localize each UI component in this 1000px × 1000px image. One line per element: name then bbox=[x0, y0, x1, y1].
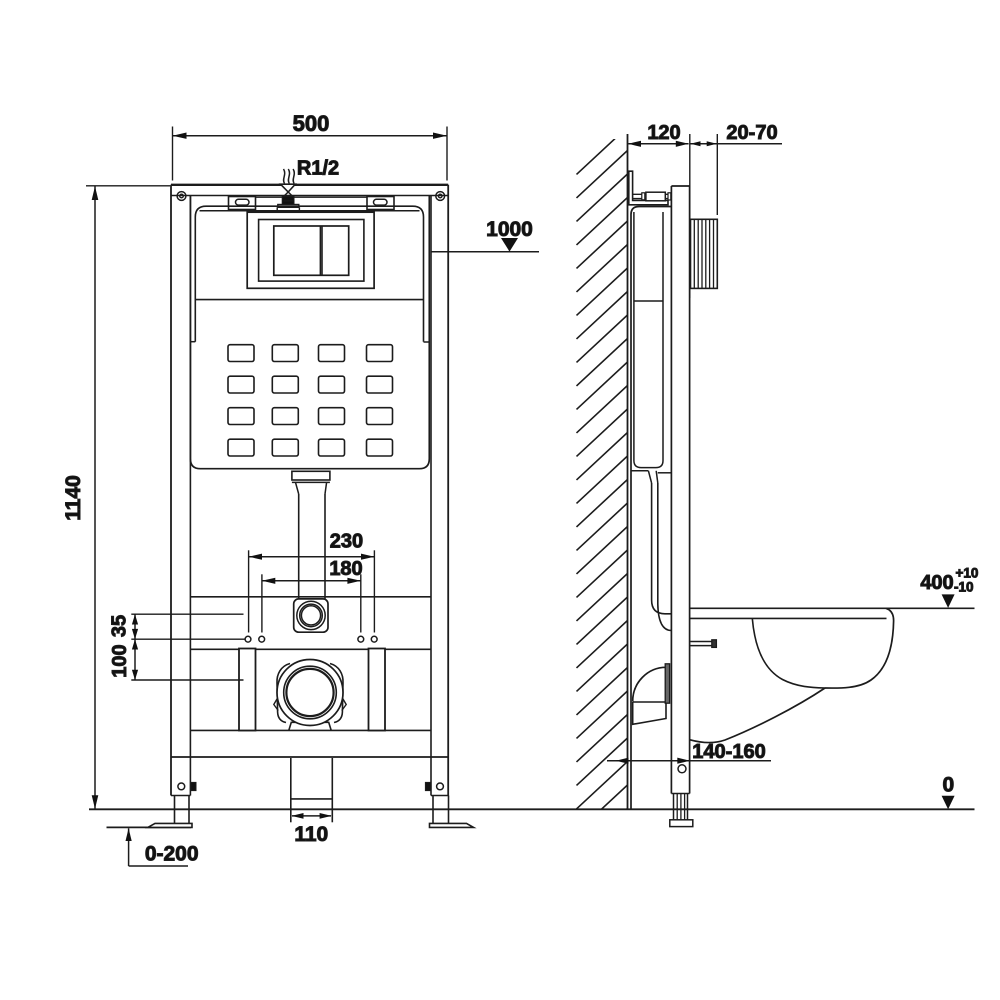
svg-text:120: 120 bbox=[647, 122, 680, 144]
svg-text:+10: +10 bbox=[956, 566, 979, 581]
svg-text:110: 110 bbox=[294, 823, 328, 846]
svg-text:R1/2: R1/2 bbox=[297, 158, 339, 180]
svg-text:400: 400 bbox=[920, 572, 953, 594]
svg-text:20-70: 20-70 bbox=[726, 122, 777, 144]
svg-text:35: 35 bbox=[109, 615, 131, 637]
svg-text:180: 180 bbox=[329, 558, 362, 580]
svg-text:0: 0 bbox=[942, 774, 954, 797]
svg-text:0-200: 0-200 bbox=[145, 843, 199, 866]
svg-text:500: 500 bbox=[293, 111, 330, 136]
svg-text:-10: -10 bbox=[954, 580, 974, 595]
svg-text:230: 230 bbox=[330, 531, 363, 553]
svg-text:1000: 1000 bbox=[486, 218, 533, 241]
svg-text:140-160: 140-160 bbox=[692, 741, 765, 763]
svg-text:1140: 1140 bbox=[62, 475, 85, 521]
svg-text:100: 100 bbox=[109, 644, 131, 677]
